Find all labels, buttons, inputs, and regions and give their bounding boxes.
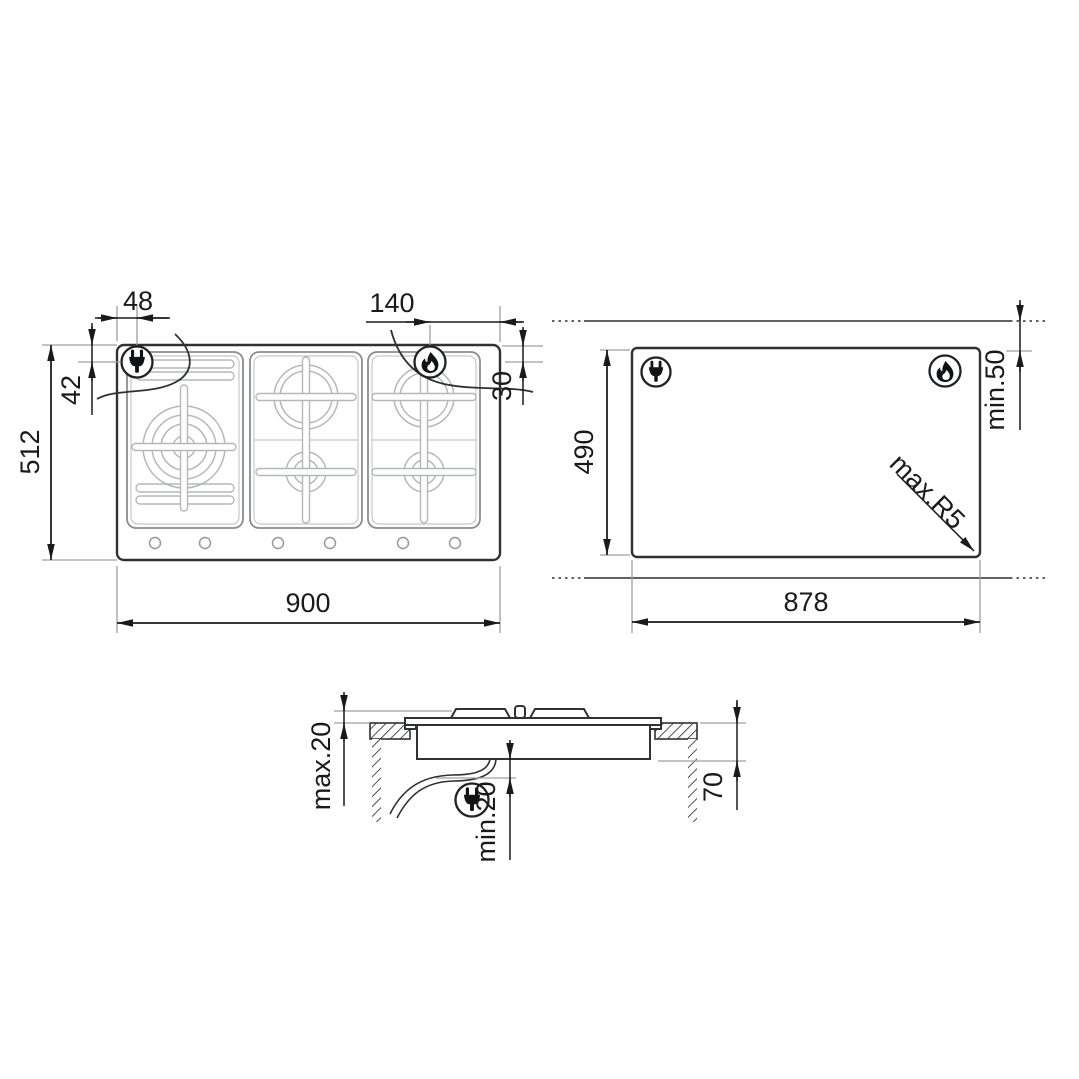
cutout-rect: [632, 348, 980, 557]
svg-text:min.20: min.20: [471, 781, 501, 862]
cutout-view: 490 878 min.50 max.R5: [552, 300, 1046, 633]
dim-plug-offset-v: 42: [42, 323, 121, 415]
hob-section: [405, 706, 661, 759]
dim-cutout-depth: 490: [569, 350, 630, 555]
svg-text:48: 48: [123, 286, 153, 316]
svg-text:min.50: min.50: [980, 349, 1010, 430]
svg-text:42: 42: [56, 375, 86, 405]
gas-flame-icon: [415, 347, 446, 378]
diagram-page: 48 140 42 30: [0, 0, 1079, 1079]
hob-installation-diagram: 48 140 42 30: [0, 0, 1079, 1079]
cabinet-wall-right: [688, 739, 697, 822]
pan-support-left: [451, 709, 510, 718]
dim-flame-offset-h: 140: [366, 288, 524, 345]
power-plug-icon: [122, 347, 153, 378]
dim-front-clearance: min.50: [980, 300, 1032, 431]
gas-flame-icon: [930, 356, 961, 387]
top-view: 48 140 42 30: [15, 286, 543, 633]
burner-cap: [515, 706, 525, 718]
svg-text:140: 140: [369, 288, 414, 318]
dim-plug-offset-h: 48: [95, 286, 170, 345]
cabinet-wall-left: [372, 739, 381, 822]
pan-support-right: [530, 709, 589, 718]
dim-cutout-width: 878: [632, 560, 980, 633]
svg-text:900: 900: [285, 588, 330, 618]
svg-text:70: 70: [698, 772, 728, 802]
svg-text:max.20: max.20: [306, 722, 336, 811]
svg-text:30: 30: [487, 371, 517, 401]
svg-text:490: 490: [569, 429, 599, 474]
hob-body-section: [417, 725, 650, 759]
svg-text:878: 878: [783, 587, 828, 617]
power-plug-icon: [642, 358, 671, 387]
dim-hob-width: 900: [117, 566, 500, 633]
svg-text:512: 512: [15, 429, 45, 474]
section-view: max.20 min.20 70: [306, 692, 746, 863]
dim-recess-depth: 70: [658, 700, 746, 810]
